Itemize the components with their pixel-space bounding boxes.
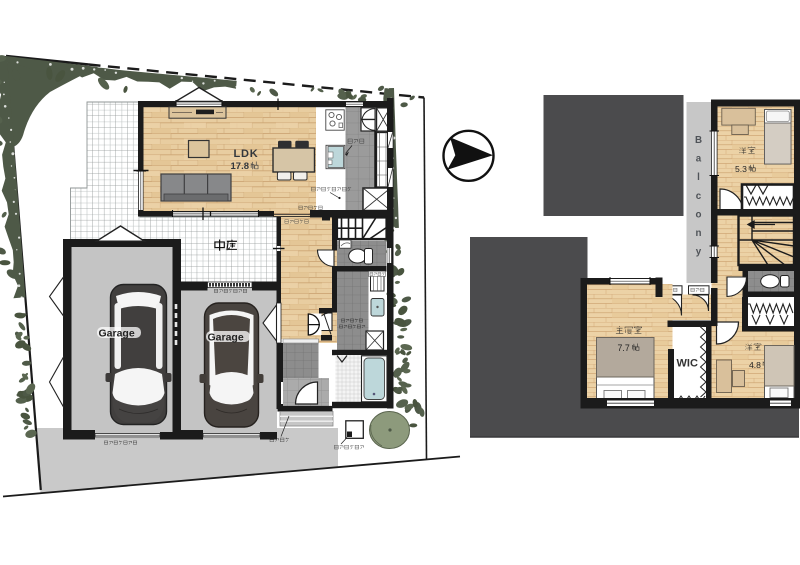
svg-text:c: c (696, 191, 702, 202)
svg-text:7.7: 7.7 (618, 343, 630, 353)
svg-text:LDK: LDK (234, 148, 259, 160)
svg-text:y: y (696, 247, 702, 258)
svg-text:Garage: Garage (99, 328, 135, 340)
svg-text:l: l (697, 172, 700, 183)
svg-text:o: o (696, 209, 702, 220)
svg-text:a: a (696, 154, 702, 165)
svg-text:5.3: 5.3 (735, 164, 747, 174)
svg-text:n: n (696, 228, 702, 239)
svg-text:4.8: 4.8 (749, 360, 761, 370)
svg-text:WIC: WIC (677, 358, 698, 370)
svg-text:Garage: Garage (208, 332, 244, 344)
svg-text:17.8: 17.8 (231, 161, 250, 172)
svg-text:B: B (695, 135, 702, 146)
